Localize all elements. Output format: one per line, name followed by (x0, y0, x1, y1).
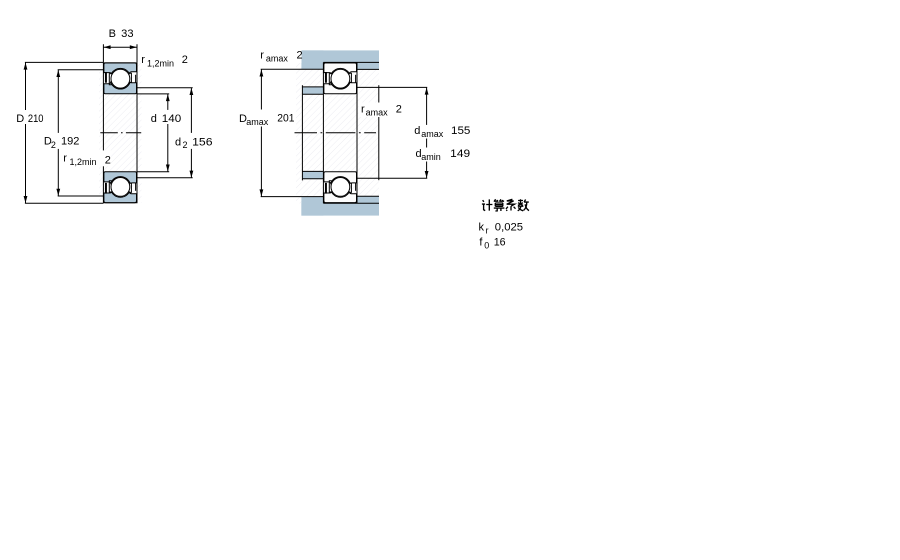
svg-text:0,025: 0,025 (495, 221, 523, 233)
svg-text:r: r (361, 104, 365, 116)
svg-text:r: r (486, 225, 489, 235)
svg-text:192: 192 (61, 136, 79, 148)
svg-text:d: d (175, 136, 181, 148)
svg-text:2: 2 (396, 103, 402, 115)
svg-text:1,2min: 1,2min (147, 58, 174, 68)
svg-text:amin: amin (421, 152, 441, 162)
svg-text:D: D (16, 113, 24, 125)
svg-text:k: k (479, 221, 485, 233)
svg-text:r: r (63, 152, 67, 164)
svg-text:2: 2 (51, 140, 56, 150)
svg-text:2: 2 (297, 50, 303, 62)
svg-text:B: B (109, 28, 116, 40)
svg-text:amax: amax (266, 54, 289, 64)
svg-text:1,2min: 1,2min (70, 157, 97, 167)
svg-text:amax: amax (366, 108, 389, 118)
svg-text:r: r (141, 54, 145, 66)
svg-text:f: f (479, 237, 483, 249)
svg-text:amax: amax (246, 117, 269, 127)
svg-text:d: d (151, 113, 157, 125)
svg-text:201: 201 (277, 113, 294, 125)
svg-text:2: 2 (182, 54, 188, 66)
svg-text:0: 0 (484, 241, 489, 251)
svg-text:16: 16 (494, 237, 506, 249)
svg-text:210: 210 (28, 113, 44, 125)
svg-text:r: r (260, 50, 264, 62)
svg-text:d: d (414, 125, 420, 137)
svg-text:amax: amax (421, 129, 444, 139)
svg-text:2: 2 (105, 155, 111, 167)
svg-text:140: 140 (162, 113, 181, 125)
svg-text:149: 149 (450, 148, 470, 160)
svg-text:33: 33 (121, 28, 133, 40)
svg-text:155: 155 (451, 125, 470, 137)
svg-text:2: 2 (183, 140, 188, 150)
svg-text:156: 156 (192, 136, 212, 148)
